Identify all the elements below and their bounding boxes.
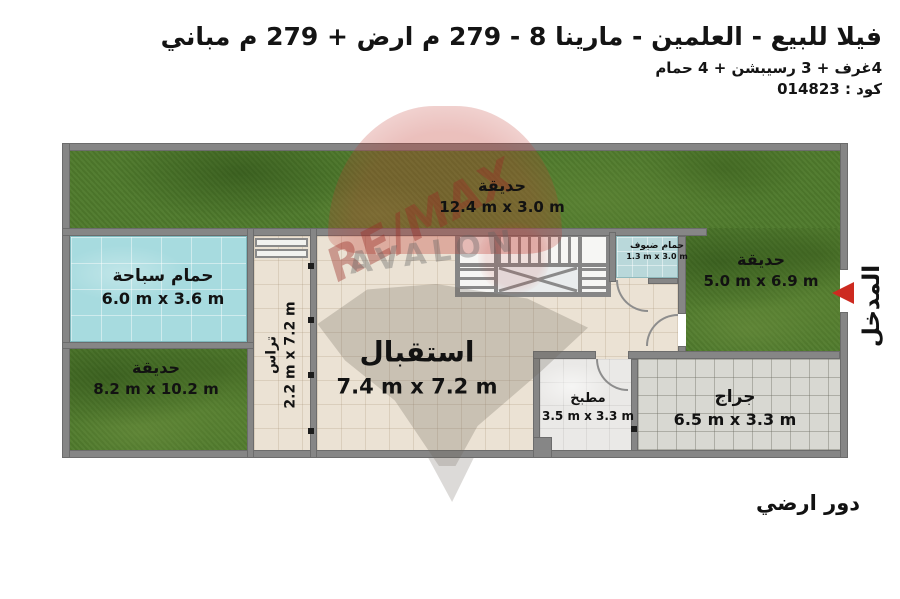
column-marker xyxy=(308,428,314,434)
outer-wall-left xyxy=(62,143,70,458)
room-name: مطبخ xyxy=(542,391,634,406)
room-dims: 6.0 m x 3.6 m xyxy=(102,289,225,308)
terrace-label: تراس 2.2 m x 7.2 m xyxy=(264,301,299,408)
floor-name-label: دور ارضي xyxy=(756,491,860,515)
stair-cross-landing xyxy=(498,267,578,292)
stair-treads-upper xyxy=(498,237,578,263)
staircase xyxy=(455,232,611,297)
room-dims: 1.3 m x 3.0 m xyxy=(626,252,687,261)
outer-wall-right-upper xyxy=(840,143,848,270)
kitchen-label: مطبخ 3.5 m x 3.3 m xyxy=(542,391,634,423)
garden-left-label: حديقة 8.2 m x 10.2 m xyxy=(93,358,218,398)
entrance-arrow-icon xyxy=(832,282,854,304)
garden-top-label: حديقة 12.4 m x 3.0 m xyxy=(439,176,564,216)
column-marker xyxy=(308,263,314,269)
guest-bath-label: حمام ضيوف 1.3 m x 3.0 m xyxy=(626,241,687,261)
outer-wall-bottom xyxy=(62,450,848,458)
kitchen-top-wall xyxy=(533,351,596,359)
room-name: تراس xyxy=(264,301,280,408)
column-marker xyxy=(631,426,637,432)
outer-wall-top xyxy=(62,143,848,151)
listing-code: كود : 014823 xyxy=(777,80,882,98)
garage-top-wall xyxy=(628,351,840,359)
pool-label: حمام سباحة 6.0 m x 3.6 m xyxy=(102,266,225,308)
room-dims: 12.4 m x 3.0 m xyxy=(439,198,564,216)
listing-title: فيلا للبيع - العلمين - مارينا 8 - 279 م … xyxy=(161,22,882,51)
listing-specs: 4غرف + 3 رسيبشن + 4 حمام xyxy=(655,59,882,77)
room-name: حديقة xyxy=(704,250,819,269)
stair-cross-lines xyxy=(498,267,578,292)
room-dims: 3.5 m x 3.3 m xyxy=(542,409,634,423)
room-dims: 7.4 m x 7.2 m xyxy=(337,375,498,399)
bath-bottom-wall xyxy=(648,278,678,284)
room-name: حديقة xyxy=(93,358,218,377)
room-name: حديقة xyxy=(439,176,564,195)
reception-label: استقبال 7.4 m x 7.2 m xyxy=(337,336,498,399)
room-dims: 8.2 m x 10.2 m xyxy=(93,380,218,398)
terrace-step xyxy=(255,249,308,258)
kitchen-corner-stub xyxy=(533,437,552,458)
stair-treads-left xyxy=(460,268,494,292)
room-dims: 6.5 m x 3.3 m xyxy=(674,410,797,429)
column-marker xyxy=(308,317,314,323)
terrace-step xyxy=(255,238,308,247)
stair-divider xyxy=(578,237,582,292)
bath-left-wall xyxy=(609,232,616,282)
floor-plan-page: فيلا للبيع - العلمين - مارينا 8 - 279 م … xyxy=(0,0,900,599)
room-dims: 2.2 m x 7.2 m xyxy=(283,301,299,408)
stair-divider xyxy=(460,263,606,267)
room-name: جراج xyxy=(674,387,797,407)
column-marker xyxy=(308,372,314,378)
garage-label: جراج 6.5 m x 3.3 m xyxy=(674,387,797,429)
garden-right-label: حديقة 5.0 m x 6.9 m xyxy=(704,250,819,290)
stair-treads-right xyxy=(582,268,606,292)
room-name: حمام ضيوف xyxy=(626,241,687,251)
watermark-balloon-tip xyxy=(424,458,478,502)
outer-wall-right-lower xyxy=(840,312,848,458)
room-name: حمام سباحة xyxy=(102,266,225,286)
pool-bottom-wall xyxy=(62,342,254,349)
stair-divider xyxy=(494,237,498,292)
room-name: استقبال xyxy=(337,336,498,369)
entrance-label: المدخل xyxy=(859,265,885,347)
room-dims: 5.0 m x 6.9 m xyxy=(704,272,819,290)
